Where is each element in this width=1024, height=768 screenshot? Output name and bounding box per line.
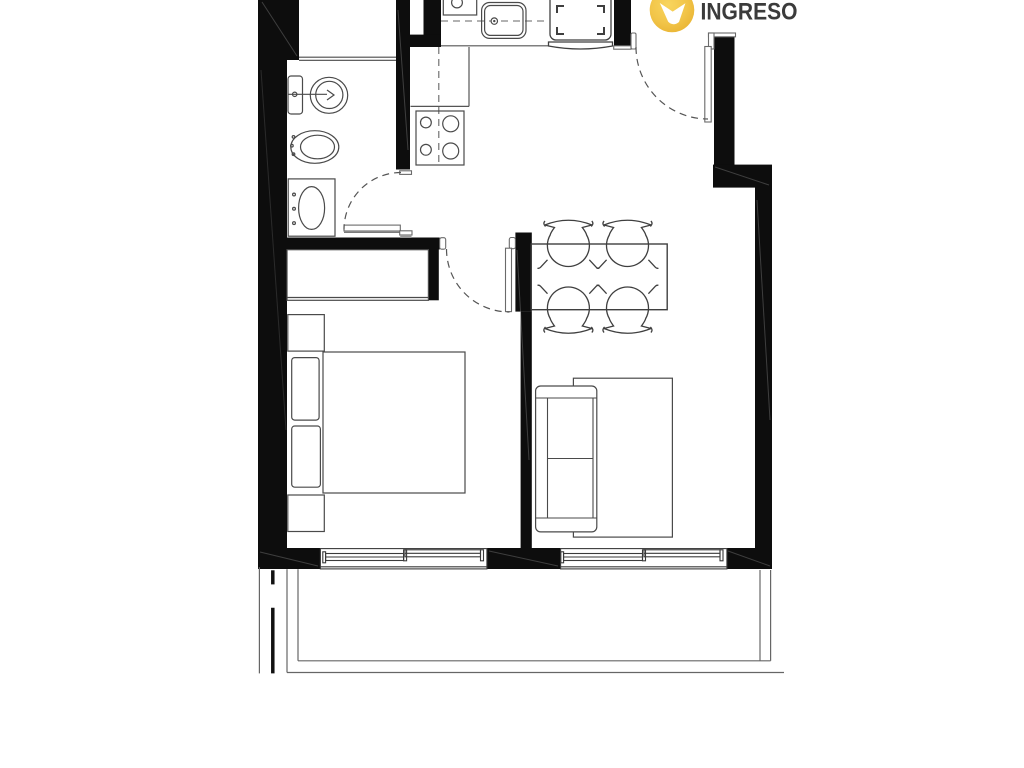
svg-text:INGRESO: INGRESO — [701, 0, 798, 26]
